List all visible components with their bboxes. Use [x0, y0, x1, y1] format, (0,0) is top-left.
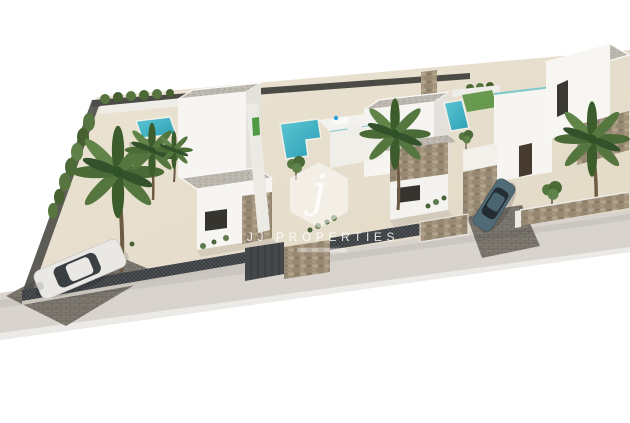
villa-2-green-door: [252, 117, 260, 136]
watermark-monogram-icon: j: [312, 170, 326, 214]
villa-2-window: [397, 185, 420, 203]
palm-tree: [554, 101, 630, 177]
palm-tree: [359, 98, 430, 169]
watermark-brand: JJ PROPERTIES: [240, 230, 406, 244]
watermark-tagline: [297, 248, 347, 252]
villa-1-window: [205, 209, 227, 231]
render-canvas: j JJ PROPERTIES: [0, 0, 630, 423]
villa-1-tower-front: [178, 92, 246, 178]
villa-3-front-door: [519, 143, 532, 177]
wall-plaster-return: [515, 210, 521, 228]
villa-3-tower-window: [557, 80, 568, 117]
palm-tree-small: [155, 131, 193, 169]
